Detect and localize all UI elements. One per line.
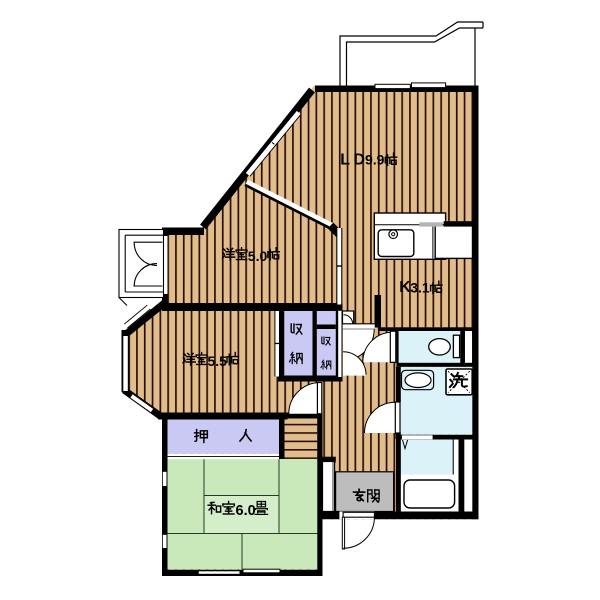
svg-text:D: D (353, 151, 365, 168)
svg-text:3.1: 3.1 (410, 279, 430, 295)
svg-text:6.0: 6.0 (236, 503, 256, 519)
svg-text:5.0: 5.0 (248, 248, 268, 264)
svg-text:5.5: 5.5 (208, 353, 228, 369)
svg-text:9.9: 9.9 (365, 152, 385, 168)
svg-text:L: L (340, 151, 350, 168)
